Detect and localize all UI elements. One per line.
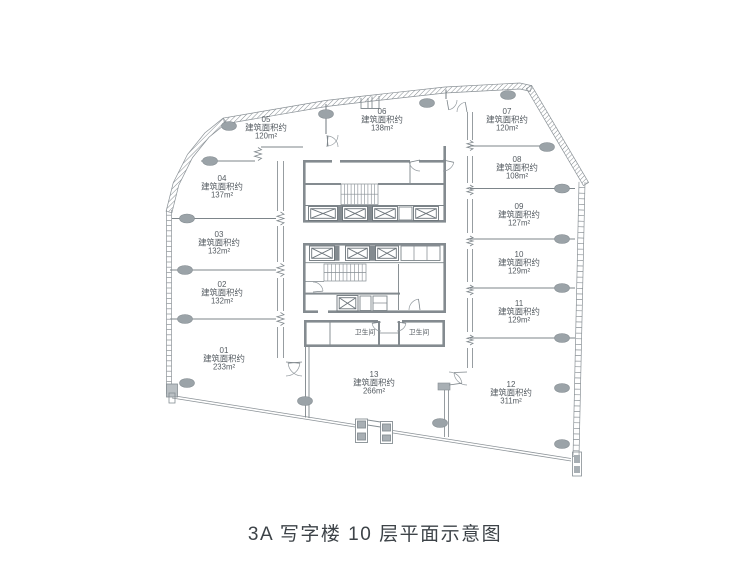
svg-text:120m²: 120m² xyxy=(255,132,278,141)
svg-text:卫生间: 卫生间 xyxy=(355,328,376,337)
svg-text:129m²: 129m² xyxy=(508,316,531,325)
svg-text:127m²: 127m² xyxy=(508,219,531,228)
svg-text:132m²: 132m² xyxy=(208,247,231,256)
svg-text:138m²: 138m² xyxy=(371,124,394,133)
svg-text:132m²: 132m² xyxy=(211,297,234,306)
svg-text:108m²: 108m² xyxy=(506,172,529,181)
svg-text:卫生间: 卫生间 xyxy=(409,328,430,337)
svg-text:137m²: 137m² xyxy=(211,191,234,200)
svg-text:266m²: 266m² xyxy=(363,387,386,396)
svg-text:129m²: 129m² xyxy=(508,267,531,276)
svg-text:233m²: 233m² xyxy=(213,363,236,372)
svg-text:311m²: 311m² xyxy=(500,397,522,406)
svg-text:120m²: 120m² xyxy=(496,124,519,133)
